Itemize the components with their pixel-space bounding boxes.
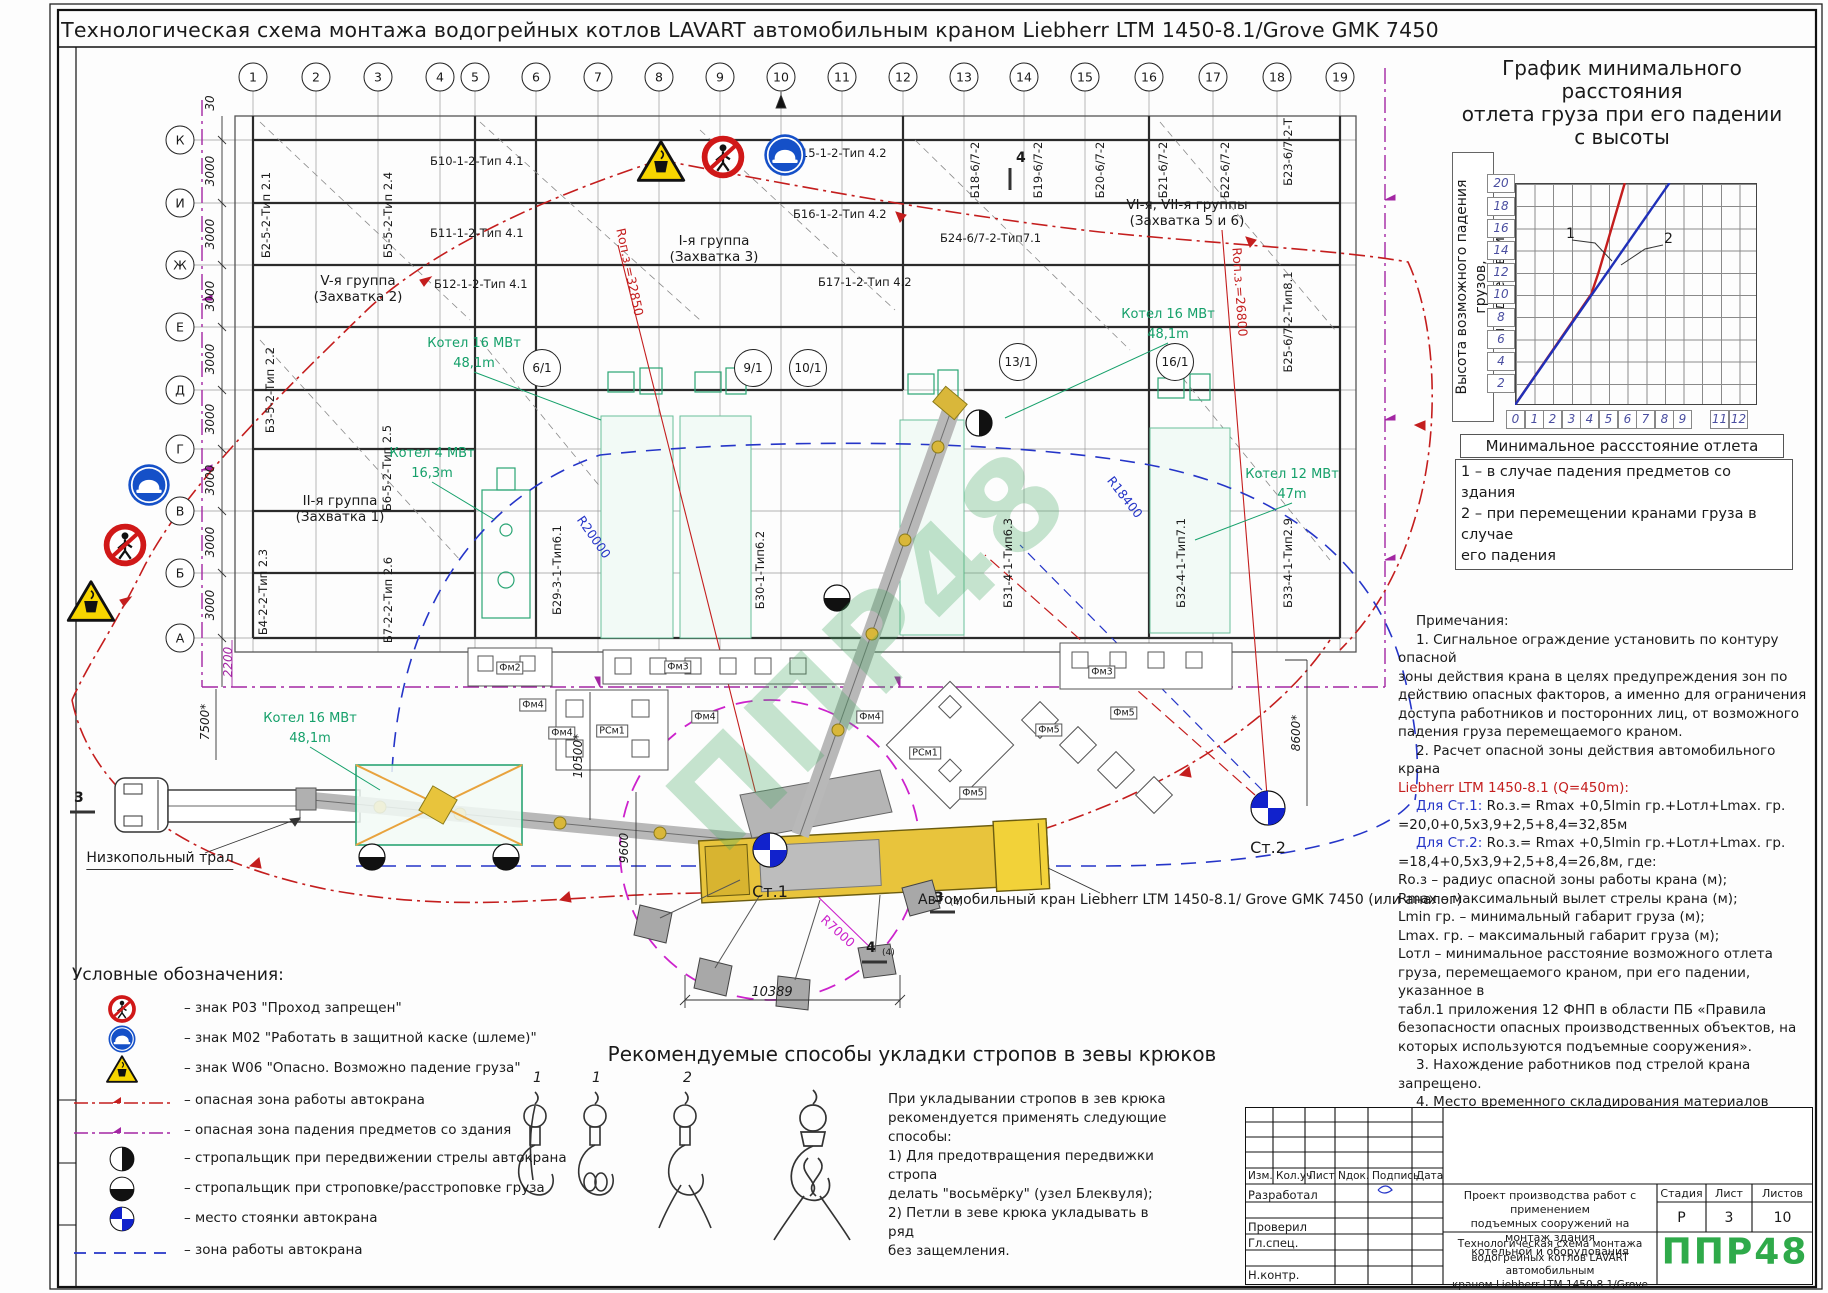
document-name: Технологическая схема монтажа водогрейны…	[1447, 1238, 1653, 1293]
sheet-value: 3	[1706, 1210, 1752, 1226]
rev-header: Кол.уч	[1276, 1170, 1312, 1182]
sheet-header: Лист	[1706, 1187, 1752, 1200]
rev-header: Nдок.	[1338, 1170, 1369, 1182]
role-label: Н.контр.	[1248, 1268, 1299, 1282]
sheets-header: Листов	[1752, 1187, 1813, 1200]
stage-header: Стадия	[1657, 1187, 1706, 1200]
drawing-sheet: Технологическая схема монтажа водогрейны…	[0, 0, 1828, 1293]
role-label: Проверил	[1248, 1220, 1307, 1234]
company-logo: ППР48	[1662, 1232, 1809, 1273]
rev-header: Дата	[1416, 1170, 1443, 1182]
role-label: Гл.спец.	[1248, 1236, 1298, 1250]
titleblock-grid	[0, 0, 1828, 1293]
rev-header: Подпись	[1372, 1170, 1419, 1182]
rev-header: Лист	[1308, 1170, 1335, 1182]
role-label: Разработал	[1248, 1188, 1318, 1202]
sheets-value: 10	[1752, 1210, 1813, 1226]
stage-value: Р	[1657, 1210, 1706, 1226]
rev-header: Изм.	[1248, 1170, 1273, 1182]
